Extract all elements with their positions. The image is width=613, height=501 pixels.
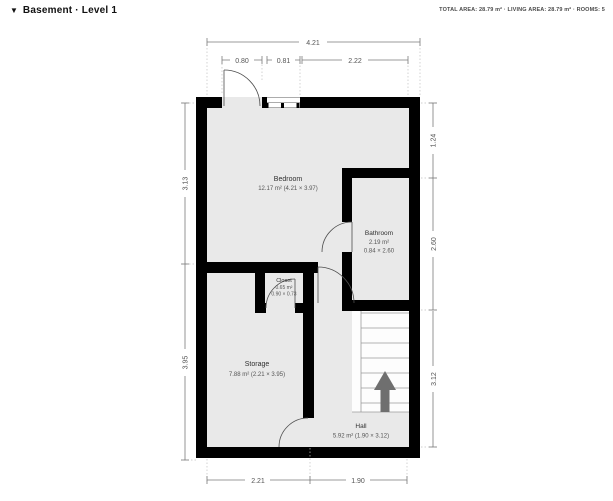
top-bar: ▼ Basement · Level 1 TOTAL AREA: 28.79 m…	[0, 0, 613, 22]
room-closet-size: 0.90 × 0.73	[271, 292, 296, 298]
wall-bathroom-left-upper	[342, 168, 352, 222]
dim-top-window: 0.81	[277, 58, 291, 65]
wall-closet-bottom-left	[255, 303, 266, 313]
room-closet-name: Closet	[276, 278, 292, 284]
dim-right-lower: 3.12	[431, 372, 438, 386]
floorplan-canvas: 4.21 0.80 0.81 2.22 3.13 3.95 1.24 2.60 …	[0, 0, 613, 501]
dim-top-right: 2.22	[348, 58, 362, 65]
staircase	[352, 311, 409, 412]
room-bedroom-name: Bedroom	[274, 176, 303, 183]
dim-bottom-right: 1.90	[351, 478, 365, 485]
window	[266, 97, 301, 108]
dim-top-door: 0.80	[235, 58, 249, 65]
area-stats: TOTAL AREA: 28.79 m² · LIVING AREA: 28.7…	[439, 7, 605, 13]
room-closet-area: 0.65 m²	[276, 285, 293, 291]
wall-bathroom-bottom	[342, 300, 409, 311]
dim-bottom-left: 2.21	[251, 478, 265, 485]
wall-bathroom-top	[342, 168, 409, 178]
dim-top-total: 4.21	[306, 40, 320, 47]
room-hall-area: 5.92 m² (1.90 × 3.12)	[333, 434, 389, 440]
wall-storage-hall-divider	[303, 273, 314, 418]
room-storage-name: Storage	[245, 361, 270, 368]
dim-right-upper: 1.24	[431, 134, 438, 148]
level-selector[interactable]: ▼ Basement · Level 1	[10, 5, 117, 16]
room-bedroom-area: 12.17 m² (4.21 × 3.97)	[258, 186, 318, 192]
room-bathroom-area: 2.19 m²	[369, 240, 389, 246]
room-bathroom-size: 0.84 × 2.60	[364, 249, 395, 255]
room-storage-area: 7.88 m² (2.21 × 3.95)	[229, 372, 285, 378]
room-bathroom-name: Bathroom	[365, 230, 393, 237]
level-dropdown-icon[interactable]: ▼	[10, 6, 18, 16]
entry-door-opening	[222, 97, 262, 108]
dim-left-upper: 3.13	[183, 177, 190, 191]
wall-bedroom-divider	[196, 262, 318, 273]
floorplan-app: ▼ Basement · Level 1 TOTAL AREA: 28.79 m…	[0, 0, 613, 501]
dim-right-middle: 2.60	[431, 237, 438, 251]
room-hall-name: Hall	[355, 423, 367, 430]
level-label: Basement · Level 1	[23, 5, 117, 16]
dim-left-lower: 3.95	[183, 356, 190, 370]
